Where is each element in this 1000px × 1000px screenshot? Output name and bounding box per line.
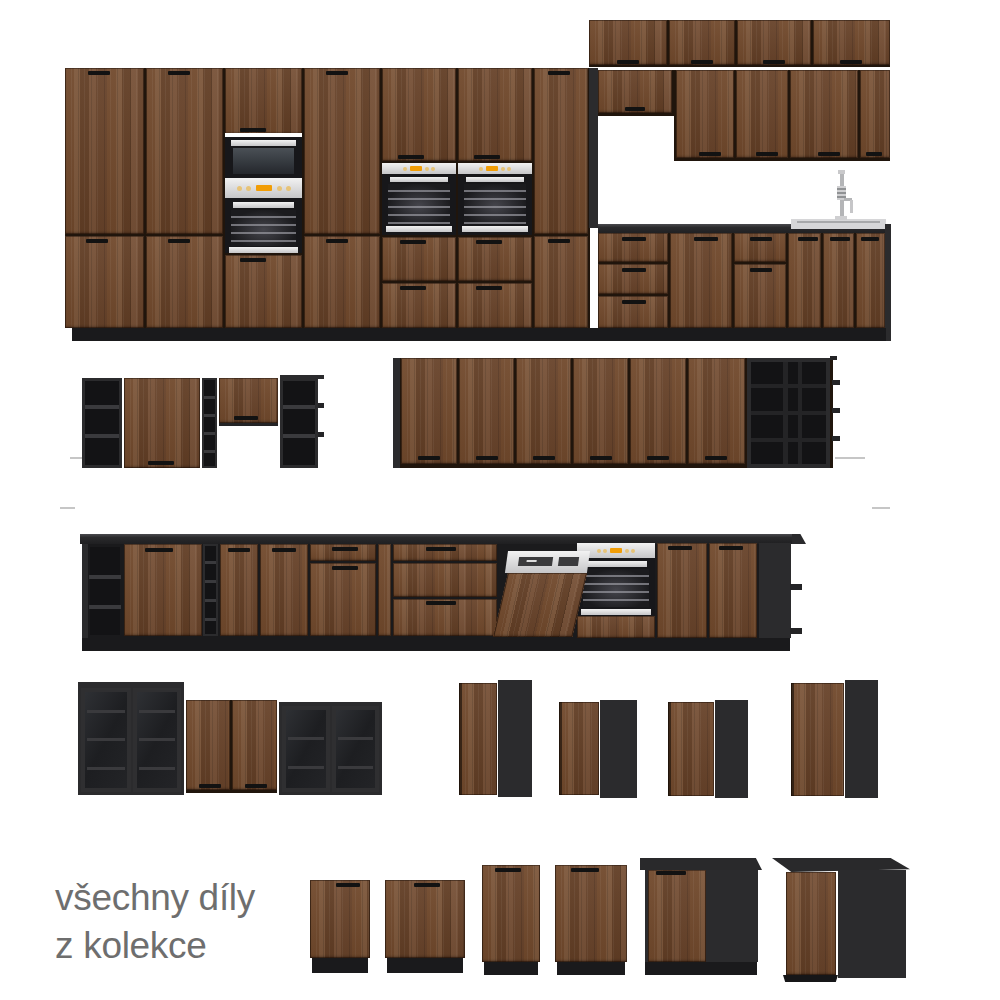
door-handle xyxy=(418,456,440,460)
oven-door-bar xyxy=(585,561,647,567)
door-handle xyxy=(617,60,639,64)
cabinet-bottom-edge xyxy=(219,423,278,426)
door-handle xyxy=(622,237,646,241)
door-handle xyxy=(750,237,772,241)
shelf-edge xyxy=(832,380,840,385)
corner-cabinet-door xyxy=(459,683,497,795)
glass-door xyxy=(282,706,330,792)
door-handle xyxy=(476,286,502,290)
door-handle xyxy=(571,868,599,872)
caption: všechny díly z kolekce xyxy=(55,874,255,970)
oven-bottom-bar xyxy=(462,226,528,232)
corner-wall-cabinet xyxy=(715,700,748,798)
oven-control-panel xyxy=(225,178,302,198)
base-cabinet-door xyxy=(220,544,258,636)
door-handle xyxy=(326,239,348,243)
door-handle xyxy=(426,601,456,605)
dishwasher-door-open xyxy=(493,573,587,637)
shelf-board xyxy=(85,405,119,409)
microwave-handle-bar xyxy=(231,140,296,146)
shelf-board xyxy=(283,405,315,409)
shelf-board xyxy=(751,411,826,415)
corner-cabinet-door xyxy=(648,870,706,962)
door-handle xyxy=(199,784,221,788)
drawer-front xyxy=(393,563,497,597)
sideboard-door xyxy=(459,358,514,464)
door-handle xyxy=(240,128,266,132)
sink-cabinet-door xyxy=(823,233,854,328)
kitchen-collection-image: všechny díly z kolekce xyxy=(0,0,1000,1000)
sideboard-door xyxy=(516,358,571,464)
sideboard-door xyxy=(630,358,686,464)
divider-tick xyxy=(835,457,865,459)
faucet-lever xyxy=(850,200,853,213)
shelf-edge xyxy=(832,408,840,413)
corner-base-top xyxy=(640,858,762,870)
door-handle xyxy=(548,239,570,243)
plinth xyxy=(312,958,368,973)
wall-cabinet-door xyxy=(737,20,811,65)
door-handle xyxy=(647,456,669,460)
door-handle xyxy=(694,237,718,241)
sideboard-door xyxy=(688,358,745,464)
door-handle xyxy=(590,456,612,460)
drawer-front xyxy=(225,255,302,328)
dishwasher-control-panel xyxy=(505,551,590,573)
shelf-board xyxy=(89,605,121,609)
appliance-column-door xyxy=(225,68,302,134)
corner-cabinet-door xyxy=(668,702,714,796)
plinth xyxy=(645,962,757,975)
shelf-board xyxy=(204,450,215,453)
base-cabinet-door xyxy=(310,563,376,636)
door-handle xyxy=(668,546,692,550)
tall-cabinet-door xyxy=(534,68,588,234)
sideboard-door xyxy=(401,358,457,464)
countertop-end xyxy=(792,534,806,544)
wall-cabinet-door xyxy=(790,70,858,158)
base-cabinet-door xyxy=(65,236,144,328)
door-handle xyxy=(148,461,174,465)
door-handle xyxy=(398,155,424,159)
caption-line-1: všechny díly xyxy=(55,874,255,922)
door-handle xyxy=(86,239,108,243)
base-cabinet-door xyxy=(385,880,465,958)
divider-tick xyxy=(872,507,890,509)
door-handle xyxy=(326,71,348,75)
tall-cabinet-door xyxy=(124,378,200,468)
wall-cabinet-door xyxy=(589,20,667,65)
door-handle xyxy=(234,416,258,420)
door-handle xyxy=(750,268,772,272)
door-handle xyxy=(168,71,190,75)
wall-cabinet-door xyxy=(232,700,277,790)
door-handle xyxy=(240,258,266,262)
base-cabinet-door xyxy=(856,233,885,328)
oven-base-panel xyxy=(577,616,655,638)
door-handle xyxy=(168,239,190,243)
shelf-edge xyxy=(830,356,837,360)
plinth xyxy=(783,975,838,982)
base-cabinet-door xyxy=(124,544,202,636)
oven-door-bar xyxy=(233,202,294,208)
door-handle xyxy=(798,237,818,241)
corner-cabinet-door xyxy=(559,702,599,795)
door-handle xyxy=(861,237,879,241)
shelf-board xyxy=(205,618,216,621)
shelf-edge xyxy=(318,403,324,408)
oven-glass xyxy=(464,184,526,224)
door-handle xyxy=(533,456,555,460)
oven-control-panel xyxy=(382,163,456,174)
corner-wall-cabinet xyxy=(845,680,878,798)
corner-base-cabinet xyxy=(838,870,906,978)
glass-door xyxy=(81,688,131,792)
door-handle xyxy=(474,155,500,159)
shelf-edge xyxy=(318,432,324,437)
shelf-opening xyxy=(85,381,119,465)
door-handle xyxy=(763,60,785,64)
tall-cabinet-door xyxy=(382,68,456,161)
door-handle xyxy=(625,107,645,111)
oven-glass xyxy=(388,184,450,224)
shelf-board xyxy=(751,384,826,388)
base-cabinet-door xyxy=(670,233,732,328)
plinth xyxy=(557,962,625,975)
shelf-board xyxy=(205,561,216,564)
door-handle xyxy=(414,883,440,887)
shelf-opening xyxy=(204,380,215,466)
filler-panel xyxy=(378,544,391,636)
glass-door xyxy=(133,688,181,792)
corner-cabinet-door xyxy=(791,683,844,796)
door-handle xyxy=(332,547,358,551)
door-handle xyxy=(145,548,173,552)
end-panel xyxy=(885,224,891,341)
tall-cabinet-door xyxy=(458,68,532,161)
sink-basin-line xyxy=(797,221,880,223)
door-handle xyxy=(691,60,713,64)
oven-bottom-bar xyxy=(229,247,298,253)
oven-glass xyxy=(583,569,649,607)
door-handle xyxy=(756,152,778,156)
base-cabinet-door xyxy=(555,865,627,962)
door-handle xyxy=(88,71,110,75)
door-handle xyxy=(476,456,498,460)
shelf-board xyxy=(204,396,215,399)
wall-cabinet-door xyxy=(186,700,230,790)
shelf-edge xyxy=(790,584,802,590)
microwave-screen xyxy=(233,148,294,174)
side-pillar xyxy=(589,68,598,228)
door-handle xyxy=(336,883,360,887)
door-handle xyxy=(622,300,646,304)
shelf-edge xyxy=(790,628,802,634)
tall-cabinet-door xyxy=(146,68,223,234)
sink-cabinet-door xyxy=(788,233,821,328)
shelf-board xyxy=(283,434,315,438)
door-handle xyxy=(245,784,267,788)
wall-cabinet-door xyxy=(676,70,734,158)
base-cabinet-door xyxy=(310,880,370,958)
door-handle xyxy=(495,868,521,872)
oven-control-panel xyxy=(458,163,532,174)
door-handle xyxy=(866,152,882,156)
base-cabinet-door xyxy=(146,236,223,328)
island-plinth xyxy=(82,638,790,651)
wall-cabinet-door xyxy=(860,70,890,158)
oven-bottom-bar xyxy=(386,226,452,232)
divider-tick xyxy=(60,507,75,509)
oven-door-bar xyxy=(390,177,448,182)
faucet-base xyxy=(835,216,847,220)
base-cabinet-door xyxy=(657,543,707,638)
shelf-board xyxy=(89,575,121,579)
shelf-opening xyxy=(283,381,315,465)
shelf-board xyxy=(85,434,119,438)
wall-cabinet-door xyxy=(736,70,788,158)
glass-door xyxy=(332,706,379,792)
shelf-edge xyxy=(832,436,840,441)
door-handle xyxy=(622,268,646,272)
door-handle xyxy=(656,871,686,875)
tall-cabinet-door xyxy=(304,68,380,234)
door-handle xyxy=(400,240,426,244)
door-handle xyxy=(705,456,727,460)
shelf-board xyxy=(204,432,215,435)
shelf-board xyxy=(205,599,216,602)
door-handle xyxy=(476,240,502,244)
sideboard-door xyxy=(573,358,628,464)
base-cabinet-door xyxy=(734,264,786,328)
end-frame xyxy=(82,544,88,638)
base-cabinet-door xyxy=(534,236,588,328)
plinth xyxy=(387,958,463,973)
door-handle xyxy=(426,547,456,551)
caption-line-2: z kolekce xyxy=(55,922,255,970)
base-cabinet-door xyxy=(482,865,540,962)
base-cabinet-door xyxy=(304,236,380,328)
shelf-board xyxy=(205,580,216,583)
sideboard-side-panel xyxy=(393,358,400,468)
wall-cabinet-door xyxy=(813,20,890,65)
door-handle xyxy=(332,566,358,570)
door-handle xyxy=(272,548,296,552)
end-shelf-unit xyxy=(759,543,791,638)
plinth xyxy=(72,328,886,341)
base-cabinet-door xyxy=(709,543,757,638)
door-handle xyxy=(719,546,743,550)
door-handle xyxy=(228,548,250,552)
corner-cabinet-door xyxy=(786,872,836,975)
base-cabinet-door xyxy=(260,544,308,636)
door-handle xyxy=(699,152,721,156)
plinth xyxy=(484,962,538,975)
oven-glass xyxy=(231,210,296,246)
door-handle xyxy=(400,286,426,290)
corner-wall-cabinet xyxy=(600,700,637,798)
oven-bottom-bar xyxy=(581,609,651,615)
door-handle xyxy=(818,152,840,156)
shelf-board xyxy=(751,438,826,442)
shelf-board xyxy=(204,414,215,417)
tall-cabinet-door xyxy=(65,68,144,234)
door-handle xyxy=(840,60,862,64)
door-handle xyxy=(548,71,570,75)
corner-wall-cabinet xyxy=(498,680,532,797)
door-handle xyxy=(830,237,850,241)
divider-tick xyxy=(70,457,82,459)
wall-cabinet-door xyxy=(669,20,735,65)
oven-door-bar xyxy=(466,177,524,182)
shelf-opening xyxy=(90,547,120,635)
